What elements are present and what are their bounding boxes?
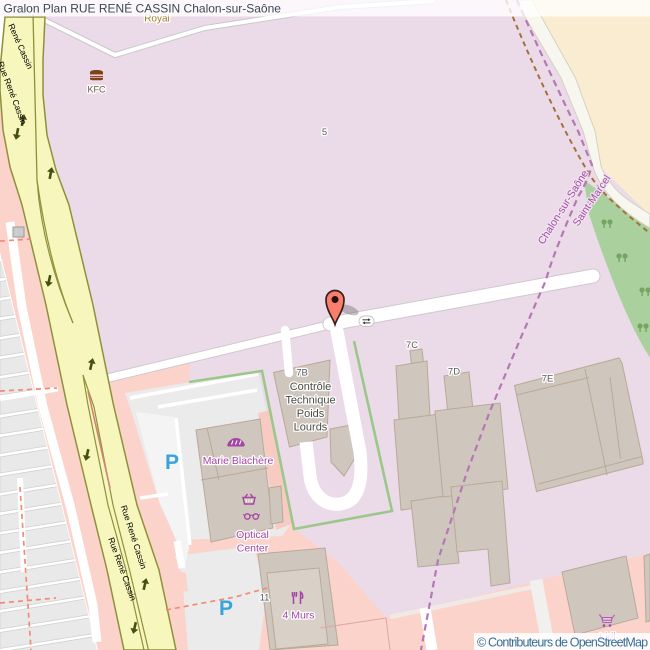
svg-text:7C: 7C <box>406 340 418 351</box>
svg-text:P: P <box>165 451 179 474</box>
svg-text:Lourds: Lourds <box>294 422 328 434</box>
svg-text:Marie Blachère: Marie Blachère <box>203 455 274 467</box>
svg-text:7D: 7D <box>448 367 460 378</box>
svg-text:7E: 7E <box>542 374 554 385</box>
svg-text:© Contributeurs de OpenStreetM: © Contributeurs de OpenStreetMap <box>477 636 648 650</box>
svg-text:Contrôle: Contrôle <box>290 381 332 393</box>
svg-text:7B: 7B <box>296 368 308 379</box>
svg-text:KFC: KFC <box>88 85 107 95</box>
svg-text:Gralon Plan RUE RENÉ CASSIN Ch: Gralon Plan RUE RENÉ CASSIN Chalon-sur-S… <box>4 1 282 16</box>
svg-text:Optical: Optical <box>236 529 269 541</box>
svg-text:11: 11 <box>260 593 270 604</box>
svg-text:Technique: Technique <box>285 395 335 407</box>
svg-text:4 Murs: 4 Murs <box>282 610 314 622</box>
svg-text:Center: Center <box>237 543 269 555</box>
svg-text:P: P <box>219 597 233 620</box>
svg-text:5: 5 <box>322 127 327 138</box>
svg-text:Poids: Poids <box>297 408 325 420</box>
